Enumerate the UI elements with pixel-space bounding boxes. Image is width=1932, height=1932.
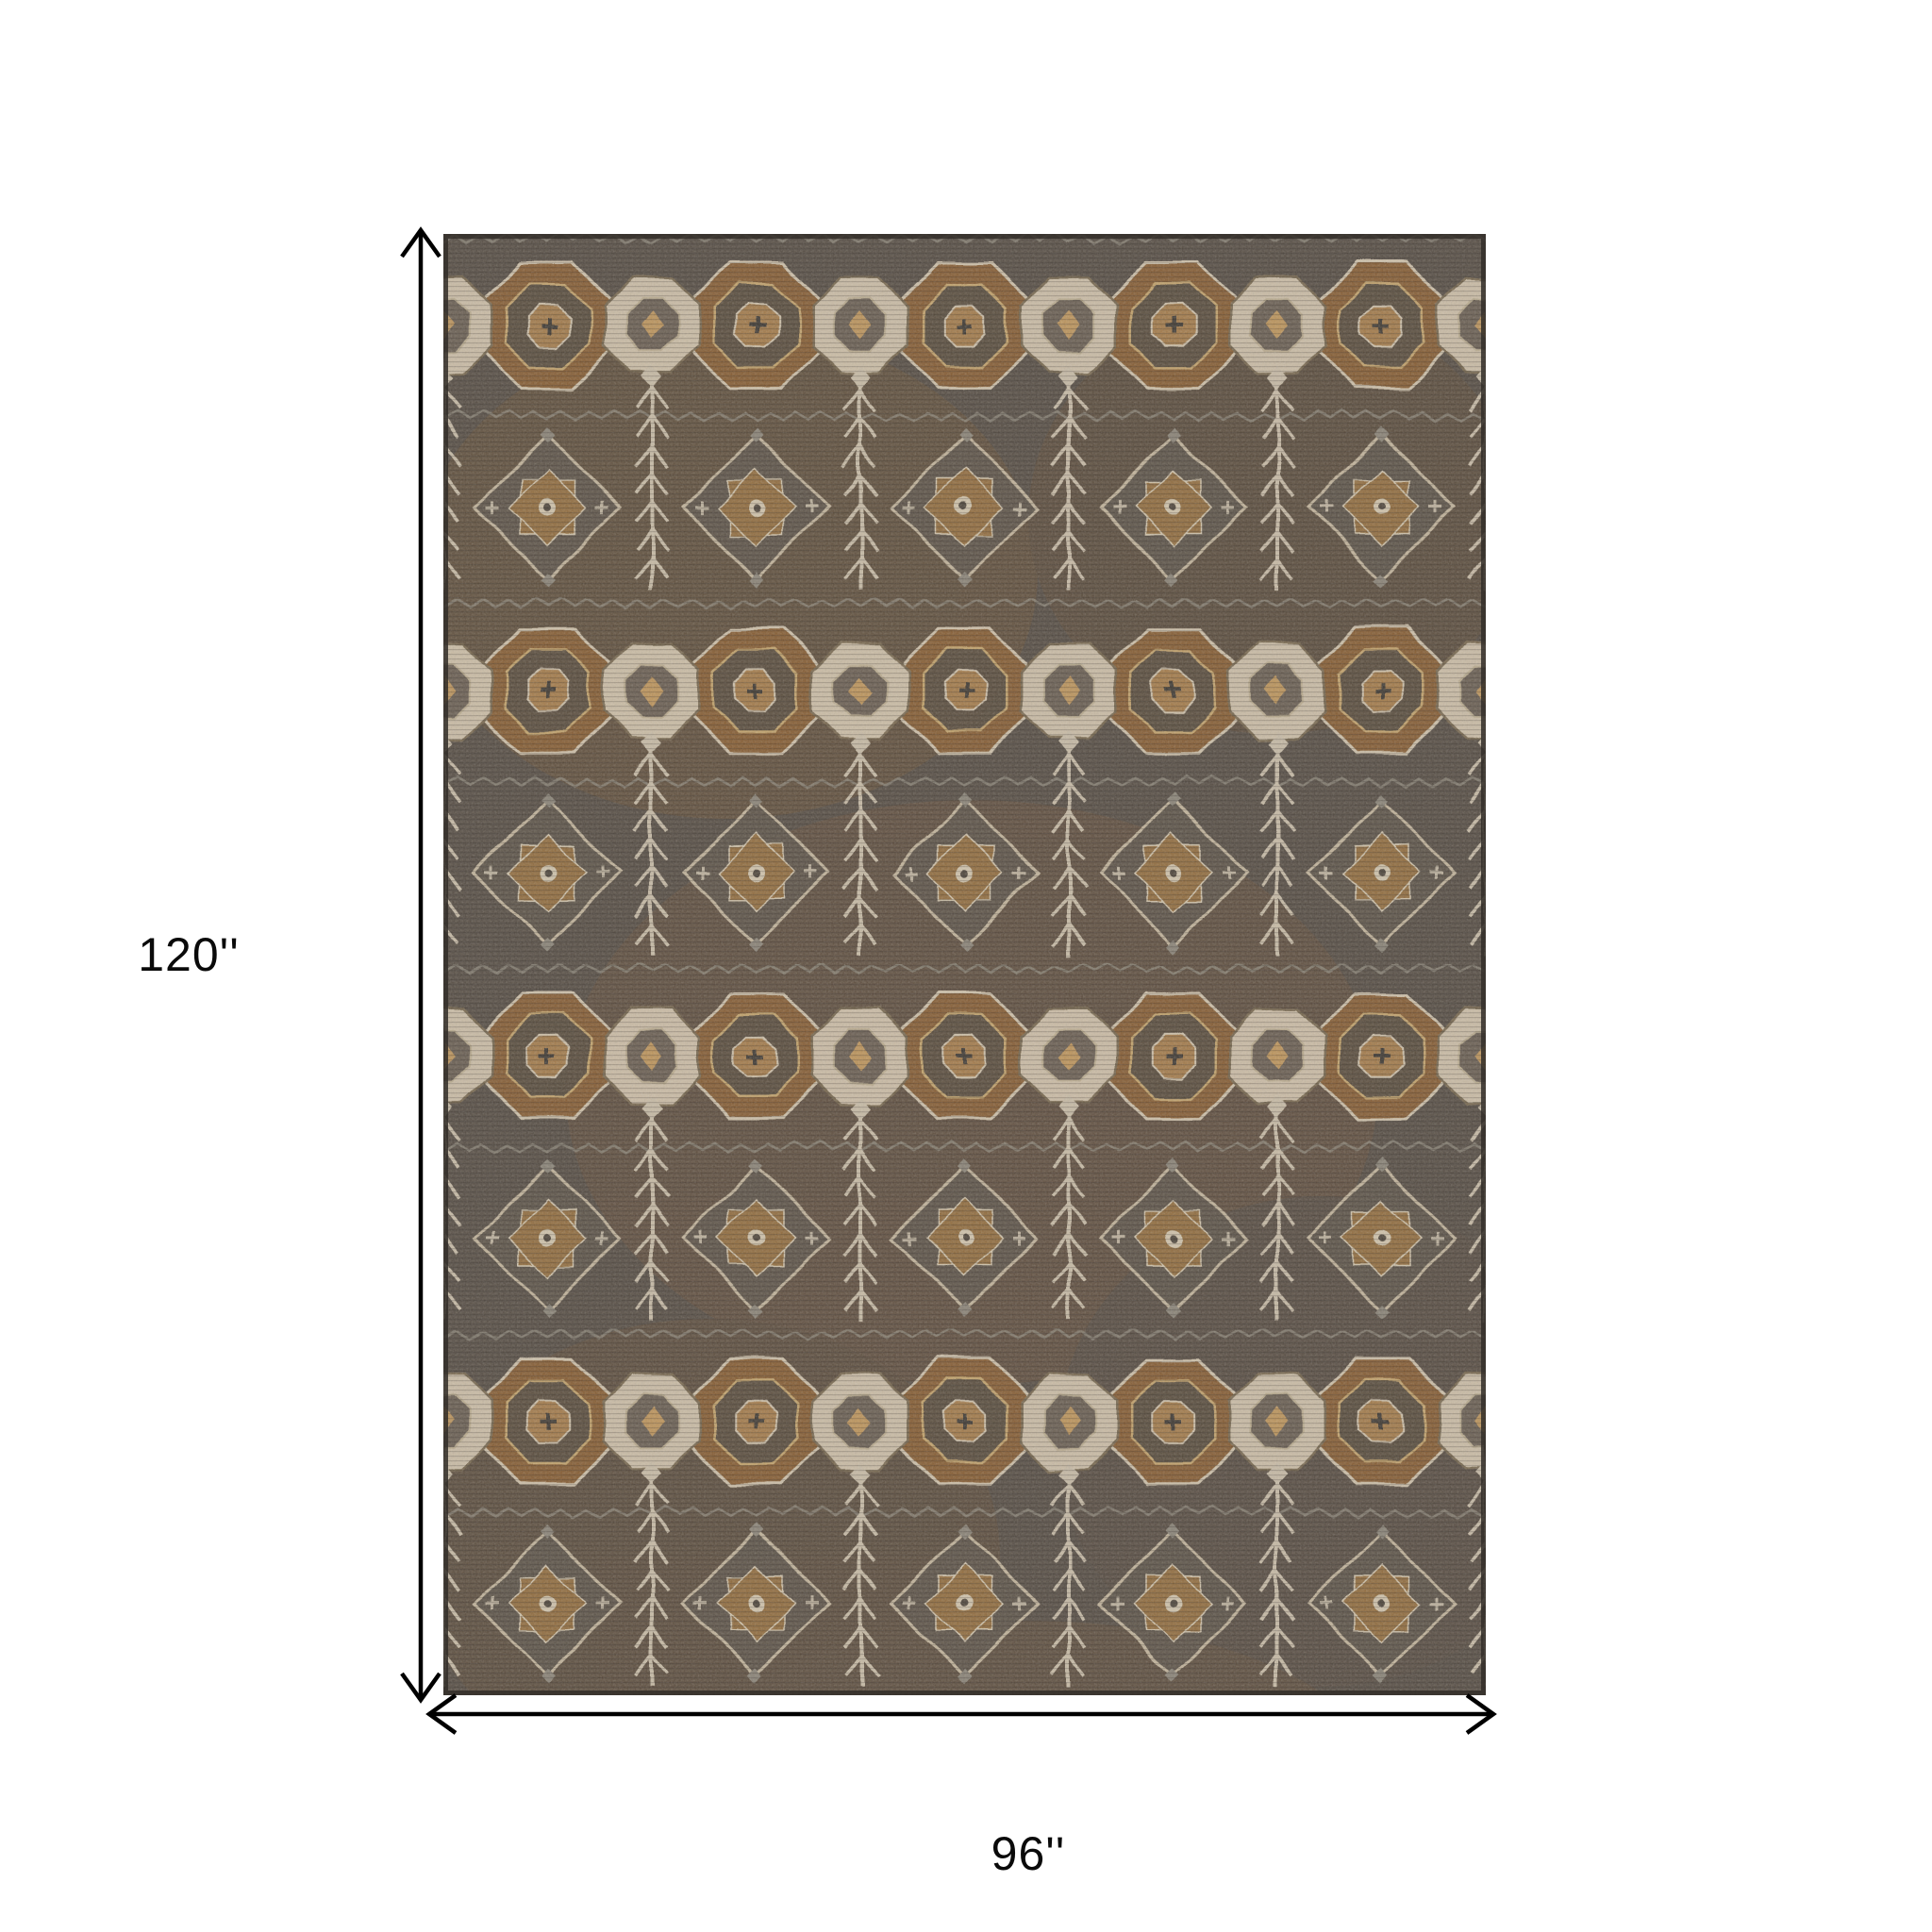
- rug-pattern-svg: [443, 234, 1486, 1695]
- height-dimension-arrow: [396, 225, 445, 1706]
- width-dimension-label: 96'': [943, 1827, 1113, 1880]
- rug-image: [443, 234, 1486, 1695]
- product-dimension-diagram: 120'' 96'': [0, 0, 1932, 1932]
- width-dimension-arrow: [423, 1690, 1499, 1739]
- height-dimension-label: 120'': [104, 928, 274, 981]
